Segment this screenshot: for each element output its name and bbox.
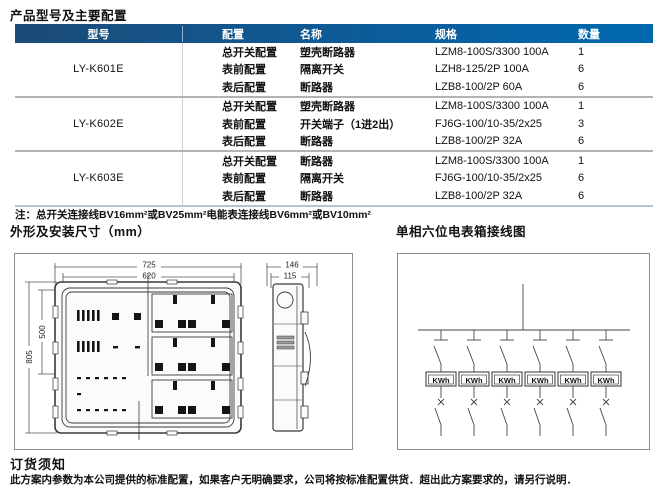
section-title-wiring: 单相六位电表箱接线图 xyxy=(396,221,526,240)
wiring-note: 注：总开关连接线BV16mm²或BV25mm²电能表连接线BV6mm²或BV10… xyxy=(15,207,371,222)
wiring-diagram-panel: KWh KWh KWh KWh KWh KWh xyxy=(397,253,650,450)
kwh-meter-label: KWh xyxy=(498,376,515,385)
table-group-ly-k603e: LY-K603E 总开关配置 断路器 LZM8-100S/3300 100A 1… xyxy=(15,150,653,205)
dim-label-depth-outer: 146 xyxy=(285,261,299,270)
cell-qty: 6 xyxy=(575,81,653,93)
meter-branches xyxy=(426,330,621,436)
model-label: LY-K602E xyxy=(15,98,183,151)
table-row: 总开关配置 塑壳断路器 LZM8-100S/3300 100A 1 xyxy=(183,43,653,61)
cell-qty: 3 xyxy=(575,118,653,130)
order-notice-title: 订货须知 xyxy=(10,454,66,473)
cell-name: 断路器 xyxy=(300,188,435,204)
cell-qty: 6 xyxy=(575,63,653,75)
table-row: 表前配置 隔离开关 LZH8-125/2P 100A 6 xyxy=(183,61,653,79)
cell-qty: 6 xyxy=(575,172,653,184)
cell-spec: LZM8-100S/3300 100A xyxy=(435,46,575,58)
dim-label-width-outer: 725 xyxy=(142,261,156,270)
dim-label-depth-inner: 115 xyxy=(284,272,297,281)
cell-config: 表后配置 xyxy=(183,133,300,149)
cell-spec: LZM8-100S/3300 100A xyxy=(435,155,575,167)
cell-config: 表前配置 xyxy=(183,170,300,186)
cell-config: 表后配置 xyxy=(183,79,300,95)
cell-config: 总开关配置 xyxy=(183,44,300,60)
model-label: LY-K603E xyxy=(15,152,183,205)
page-title: 产品型号及主要配置 xyxy=(10,5,127,24)
kwh-meter-label: KWh xyxy=(531,376,548,385)
cell-spec: LZH8-125/2P 100A xyxy=(435,63,575,75)
table-row: 表前配置 隔离开关 FJ6G-100/10-35/2x25 6 xyxy=(183,170,653,188)
front-view xyxy=(53,274,243,440)
outline-drawing-panel: 725 620 805 500 146 115 xyxy=(14,253,353,450)
table-header-row: 型号 配置 名称 规格 数量 xyxy=(15,24,653,43)
cell-name: 开关端子（1进2出） xyxy=(300,116,435,132)
cell-config: 总开关配置 xyxy=(183,153,300,169)
table-group-ly-k601e: LY-K601E 总开关配置 塑壳断路器 LZM8-100S/3300 100A… xyxy=(15,43,653,96)
order-notice-body: 此方案内参数为本公司提供的标准配置，如果客户无明确要求，公司将按标准配置供货．超… xyxy=(10,472,655,487)
col-header-config: 配置 xyxy=(183,26,300,42)
config-table: 型号 配置 名称 规格 数量 LY-K601E 总开关配置 塑壳断路器 LZM8… xyxy=(15,24,653,207)
dim-label-height-inner: 500 xyxy=(38,325,47,339)
col-header-qty: 数量 xyxy=(575,26,653,42)
dim-label-width-inner: 620 xyxy=(142,272,156,281)
cell-spec: FJ6G-100/10-35/2x25 xyxy=(435,118,575,130)
side-view xyxy=(273,284,311,431)
section-title-dimensions: 外形及安装尺寸（mm） xyxy=(10,221,150,240)
dim-label-height-outer: 805 xyxy=(25,350,34,364)
cell-config: 表前配置 xyxy=(183,61,300,77)
cell-qty: 6 xyxy=(575,190,653,202)
cell-spec: LZB8-100/2P 60A xyxy=(435,81,575,93)
model-label: LY-K601E xyxy=(15,43,183,96)
table-row: 总开关配置 塑壳断路器 LZM8-100S/3300 100A 1 xyxy=(183,98,653,116)
col-header-model: 型号 xyxy=(15,26,183,42)
cell-spec: LZM8-100S/3300 100A xyxy=(435,100,575,112)
table-row: 表前配置 开关端子（1进2出） FJ6G-100/10-35/2x25 3 xyxy=(183,115,653,133)
cell-qty: 1 xyxy=(575,155,653,167)
col-header-name: 名称 xyxy=(300,26,435,42)
cell-name: 断路器 xyxy=(300,153,435,169)
outline-drawing: 725 620 805 500 146 115 xyxy=(15,254,352,449)
cell-name: 断路器 xyxy=(300,79,435,95)
cell-name: 断路器 xyxy=(300,133,435,149)
catalog-page: { "page": { "title": "产品型号及主要配置", "note"… xyxy=(0,0,657,493)
cell-config: 总开关配置 xyxy=(183,98,300,114)
table-group-ly-k602e: LY-K602E 总开关配置 塑壳断路器 LZM8-100S/3300 100A… xyxy=(15,96,653,151)
cell-spec: LZB8-100/2P 32A xyxy=(435,190,575,202)
kwh-meter-label: KWh xyxy=(597,376,614,385)
cell-name: 隔离开关 xyxy=(300,61,435,77)
table-row: 表后配置 断路器 LZB8-100/2P 32A 6 xyxy=(183,187,653,205)
cell-name: 塑壳断路器 xyxy=(300,44,435,60)
cell-name: 塑壳断路器 xyxy=(300,98,435,114)
kwh-meter-label: KWh xyxy=(465,376,482,385)
cell-spec: FJ6G-100/10-35/2x25 xyxy=(435,172,575,184)
col-header-spec: 规格 xyxy=(435,26,575,42)
table-row: 表后配置 断路器 LZB8-100/2P 32A 6 xyxy=(183,133,653,151)
table-row: 表后配置 断路器 LZB8-100/2P 60A 6 xyxy=(183,78,653,96)
cell-config: 表后配置 xyxy=(183,188,300,204)
kwh-meter-label: KWh xyxy=(432,376,449,385)
cell-name: 隔离开关 xyxy=(300,170,435,186)
cell-qty: 1 xyxy=(575,46,653,58)
cell-qty: 6 xyxy=(575,135,653,147)
cell-spec: LZB8-100/2P 32A xyxy=(435,135,575,147)
table-row: 总开关配置 断路器 LZM8-100S/3300 100A 1 xyxy=(183,152,653,170)
cell-config: 表前配置 xyxy=(183,116,300,132)
cell-qty: 1 xyxy=(575,100,653,112)
wiring-diagram: KWh KWh KWh KWh KWh KWh xyxy=(398,254,649,449)
kwh-meter-label: KWh xyxy=(564,376,581,385)
